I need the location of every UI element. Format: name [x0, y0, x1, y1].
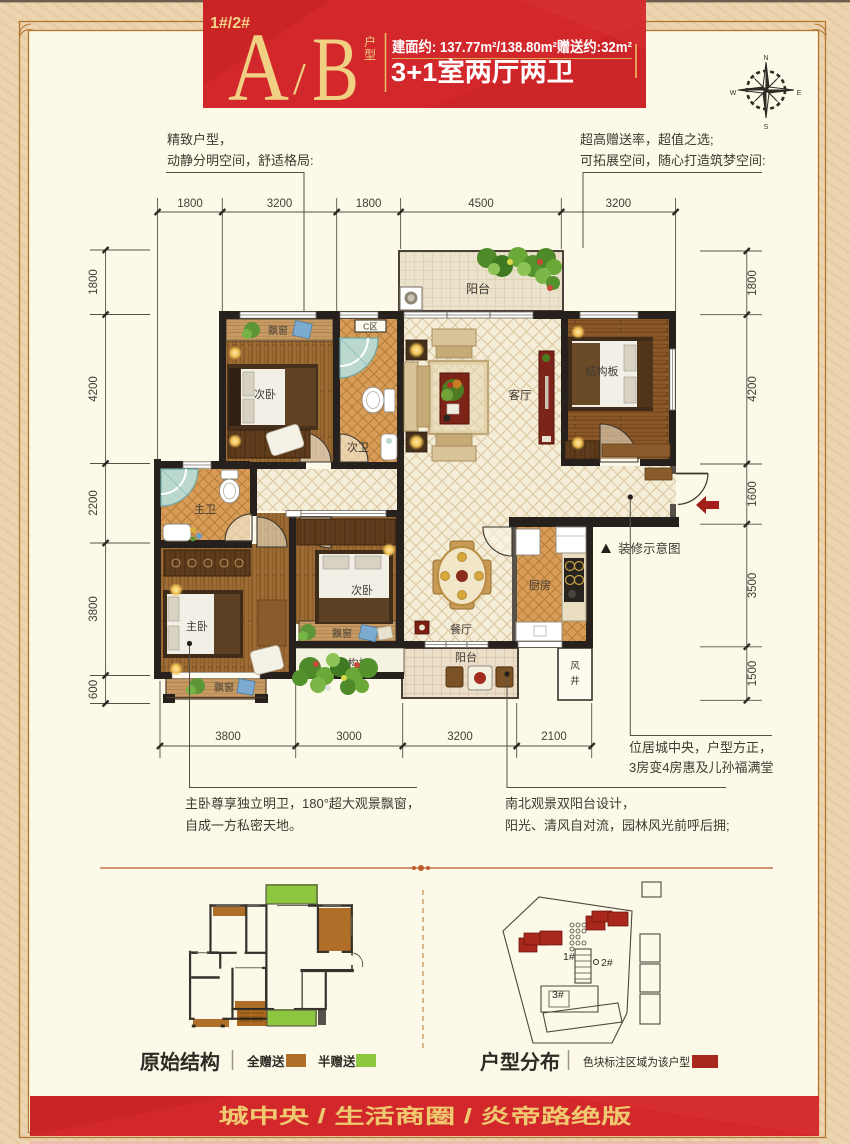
svg-text:自成一方私密天地。: 自成一方私密天地。 [185, 818, 302, 833]
svg-text:次卫: 次卫 [347, 440, 369, 454]
svg-text:E: E [797, 90, 802, 97]
svg-text:S: S [764, 124, 769, 131]
svg-text:动静分明空间，舒适格局:: 动静分明空间，舒适格局: [167, 153, 314, 168]
svg-text:1800: 1800 [356, 198, 382, 210]
svg-text:主卧: 主卧 [186, 620, 208, 633]
svg-text:色块标注区域为该户型: 色块标注区域为该户型 [583, 1055, 690, 1069]
svg-text:4200: 4200 [747, 376, 759, 402]
svg-text:A: A [228, 14, 289, 121]
svg-text:风: 风 [570, 661, 580, 672]
svg-text:原始结构: 原始结构 [140, 1050, 220, 1074]
svg-text:飘窗: 飘窗 [332, 627, 352, 640]
svg-text:飘窗: 飘窗 [214, 681, 234, 694]
svg-text:1800: 1800 [88, 269, 100, 295]
svg-text:C区: C区 [363, 322, 378, 332]
svg-text:结构板: 结构板 [586, 364, 619, 378]
svg-text:主卫: 主卫 [194, 503, 216, 516]
svg-text:3房变4房惠及儿孙福满堂: 3房变4房惠及儿孙福满堂 [629, 760, 773, 775]
svg-text:主卧尊享独立明卫，180°超大观景飘窗，: 主卧尊享独立明卫，180°超大观景飘窗， [185, 796, 420, 811]
svg-text:装修示意图: 装修示意图 [618, 541, 681, 556]
svg-text:井: 井 [570, 675, 580, 687]
svg-text:超高赠送率，超值之选;: 超高赠送率，超值之选; [580, 132, 714, 147]
svg-text:阳光、清风自对流，园林风光前呼后拥;: 阳光、清风自对流，园林风光前呼后拥; [505, 818, 730, 833]
svg-text:2200: 2200 [88, 490, 100, 516]
svg-text:4500: 4500 [468, 198, 494, 210]
svg-text:3#: 3# [552, 989, 564, 1001]
svg-text:1600: 1600 [747, 481, 759, 507]
svg-text:阳台: 阳台 [455, 650, 477, 664]
svg-text:南北观景双阳台设计，: 南北观景双阳台设计， [505, 796, 635, 811]
svg-text:4200: 4200 [88, 376, 100, 402]
svg-text:建面约: 137.77m²/138.80m²赠送约:32m²: 建面约: 137.77m²/138.80m²赠送约:32m² [392, 38, 632, 56]
svg-text:飘窗: 飘窗 [268, 324, 288, 337]
svg-text:型: 型 [364, 48, 376, 62]
svg-text:半赠送: 半赠送 [318, 1054, 356, 1069]
svg-text:全赠送: 全赠送 [246, 1054, 285, 1069]
svg-text:1500: 1500 [747, 661, 759, 687]
svg-text:精致户型，: 精致户型， [167, 132, 232, 147]
svg-text:3800: 3800 [88, 596, 100, 622]
svg-text:1#: 1# [563, 951, 575, 963]
svg-text:户: 户 [364, 34, 376, 49]
svg-text:阳台: 阳台 [466, 281, 490, 296]
svg-text:600: 600 [88, 680, 100, 699]
svg-text:次卧: 次卧 [254, 387, 276, 401]
svg-text:1800: 1800 [177, 198, 203, 210]
svg-text:N: N [763, 55, 768, 62]
svg-text:次卧: 次卧 [351, 583, 373, 597]
svg-text:3500: 3500 [747, 573, 759, 599]
svg-text:3200: 3200 [606, 198, 632, 210]
svg-text:厨房: 厨房 [529, 579, 551, 592]
svg-text:客厅: 客厅 [509, 388, 532, 402]
svg-text:3800: 3800 [215, 731, 241, 743]
svg-text:3+1室两厅两卫: 3+1室两厅两卫 [391, 57, 574, 87]
svg-text:/: / [293, 53, 306, 104]
svg-text:3000: 3000 [336, 731, 362, 743]
svg-text:可拓展空间，随心打造筑梦空间:: 可拓展空间，随心打造筑梦空间: [580, 153, 766, 168]
svg-text:W: W [730, 90, 737, 97]
svg-text:位居城中央，户型方正，: 位居城中央，户型方正， [629, 740, 772, 755]
svg-text:B: B [312, 18, 359, 120]
svg-text:2#: 2# [601, 957, 613, 969]
svg-text:餐厅: 餐厅 [450, 622, 472, 636]
svg-text:3200: 3200 [447, 731, 473, 743]
svg-text:3200: 3200 [267, 198, 293, 210]
svg-text:户型分布: 户型分布 [480, 1050, 560, 1074]
svg-text:2100: 2100 [541, 731, 567, 743]
svg-text:城中央 / 生活商圈 / 炎帝路绝版: 城中央 / 生活商圈 / 炎帝路绝版 [219, 1104, 632, 1128]
svg-text:1800: 1800 [747, 270, 759, 296]
